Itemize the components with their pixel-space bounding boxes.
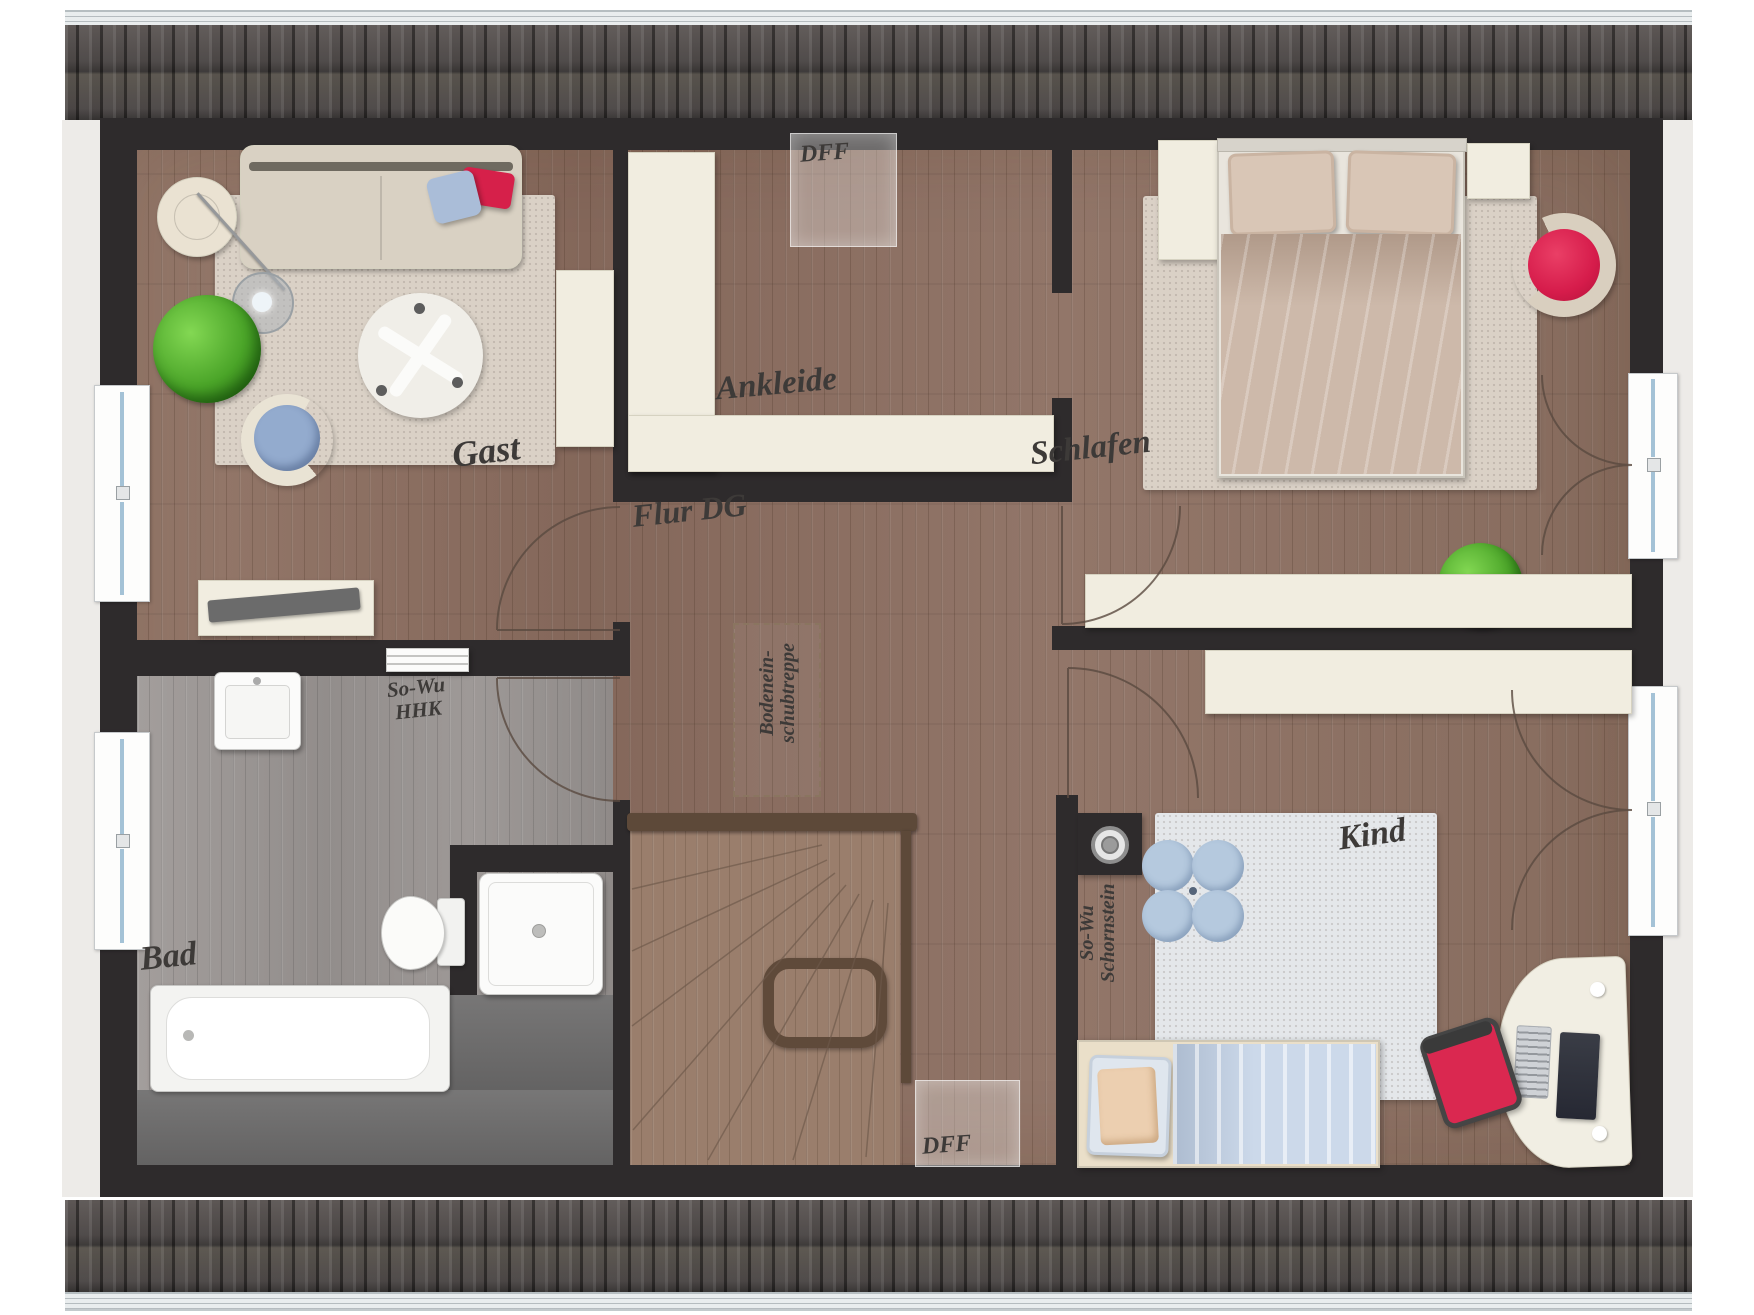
cabinet-schlafen-left bbox=[1158, 140, 1220, 260]
room-label-bad: Bad bbox=[138, 935, 198, 979]
sofa-seam bbox=[380, 176, 382, 260]
shower-tray bbox=[479, 873, 603, 995]
sink bbox=[214, 672, 301, 750]
floor-plan: Gast Ankleide Schlafen Flur DG Bad Kind … bbox=[0, 0, 1754, 1315]
tub-chair-cushion bbox=[1528, 229, 1600, 301]
wall-bad-right bbox=[613, 800, 630, 1165]
wall-schlafen-kind bbox=[1052, 626, 1630, 650]
annotation-hhk: So-Wu HHK bbox=[386, 673, 449, 725]
wall-bad-top-corner bbox=[613, 622, 630, 640]
stair-railing-top bbox=[627, 813, 917, 831]
window-gast-left bbox=[94, 385, 150, 602]
stair-handrail-loop bbox=[763, 958, 887, 1048]
armchair-cushion bbox=[254, 405, 320, 471]
eaves-strip-right bbox=[1663, 120, 1693, 1197]
window-bad-left bbox=[94, 732, 150, 950]
wall-kind-left bbox=[1056, 795, 1078, 1165]
desk-dot-top bbox=[1590, 982, 1605, 997]
wall-bad-top bbox=[100, 640, 630, 676]
french-door-schlafen bbox=[1628, 373, 1678, 559]
eaves-strip-left bbox=[62, 120, 100, 1197]
monitor bbox=[1556, 1032, 1600, 1120]
bed-headboard bbox=[1217, 138, 1467, 152]
wall-ankleide-schlafen-upper bbox=[1052, 148, 1072, 293]
bath-lowroom-bottom bbox=[137, 1090, 613, 1165]
wall-shower-top bbox=[450, 845, 613, 872]
roof-gutter-bottom bbox=[65, 1292, 1692, 1311]
sideboard-kind bbox=[1205, 650, 1632, 714]
room-label-gast: Gast bbox=[450, 426, 523, 476]
annotation-chimney: So-Wu Schornstein bbox=[1077, 858, 1119, 1008]
nightstand-schlafen bbox=[1467, 143, 1530, 199]
bed-duvet bbox=[1221, 234, 1461, 474]
annotation-attic-ladder: Bodenein- schubtreppe bbox=[757, 618, 799, 768]
bed-kind-pillow-inner bbox=[1097, 1067, 1159, 1146]
annotation-dff-top: DFF bbox=[799, 138, 850, 168]
roof-tiles-top bbox=[65, 25, 1692, 120]
bathtub bbox=[150, 985, 450, 1092]
desk-dot-bottom bbox=[1592, 1126, 1607, 1141]
bed-pillow-right bbox=[1346, 150, 1457, 236]
annotation-dff-bottom: DFF bbox=[921, 1130, 972, 1160]
wardrobe-ankleide-bottom bbox=[628, 415, 1054, 472]
plant-gast bbox=[153, 295, 261, 403]
radiator bbox=[386, 648, 469, 672]
roof-tiles-bottom bbox=[65, 1200, 1692, 1292]
flower-cushion bbox=[1140, 838, 1246, 944]
bath-lowroom-right bbox=[448, 995, 613, 1090]
french-door-kind bbox=[1628, 686, 1678, 936]
side-table bbox=[157, 177, 237, 257]
bed-kind-duvet bbox=[1173, 1044, 1376, 1164]
chimney-flue-core bbox=[1101, 836, 1119, 854]
wall-right bbox=[1630, 118, 1663, 1197]
wardrobe-gast bbox=[556, 270, 614, 447]
stair-railing-right bbox=[901, 831, 911, 1083]
bed-pillow-left bbox=[1228, 150, 1337, 236]
bed-kind bbox=[1077, 1040, 1380, 1168]
sideboard-schlafen bbox=[1085, 574, 1632, 628]
wall-bottom bbox=[100, 1165, 1663, 1197]
coffee-table bbox=[358, 293, 483, 418]
bed-schlafen bbox=[1217, 140, 1465, 478]
wall-gast-ankleide bbox=[613, 148, 628, 500]
